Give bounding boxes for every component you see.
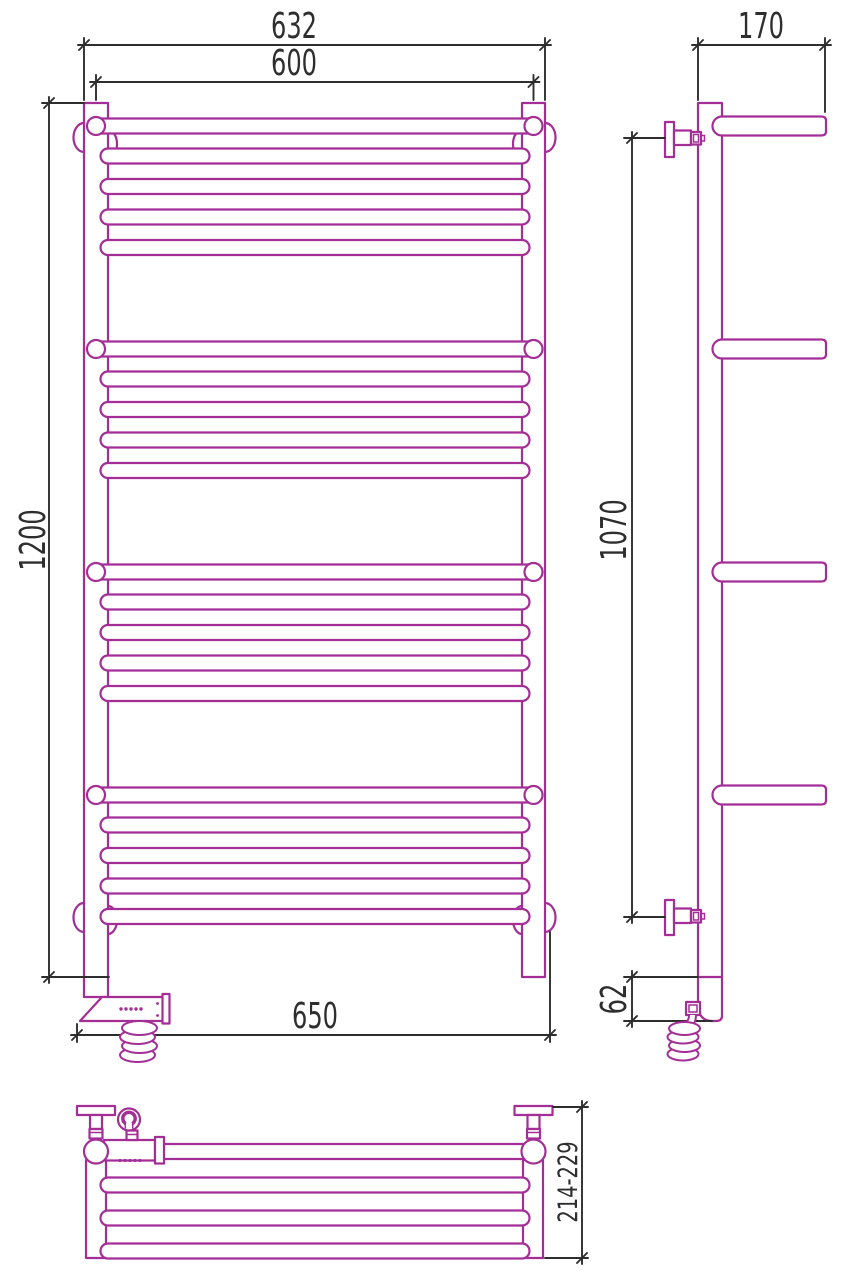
- plan-shelf-bar: [101, 1244, 530, 1259]
- shelf-arm: [713, 786, 827, 805]
- plan-view: [77, 1106, 553, 1259]
- rung: [101, 625, 530, 640]
- shelf-arm-end: [525, 786, 543, 804]
- rung: [101, 240, 530, 255]
- rung: [101, 686, 530, 701]
- collector-rung: [96, 788, 534, 803]
- bracket-plate: [77, 1106, 115, 1115]
- bracket-stem: [674, 131, 691, 146]
- side-view: [665, 103, 826, 1021]
- shelf-arm-end: [87, 563, 105, 581]
- rung: [101, 372, 530, 387]
- dim-214-229: 214-229: [545, 1101, 588, 1264]
- front-power-cord-coil: [120, 1021, 157, 1062]
- shelf-arm: [713, 340, 827, 359]
- bracket-foot: [90, 1129, 103, 1139]
- rung: [101, 656, 530, 671]
- plan-wall-bracket-right: [515, 1106, 553, 1139]
- rung: [101, 210, 530, 225]
- plan-shelf-bar: [101, 1178, 530, 1193]
- rung: [101, 595, 530, 610]
- rung: [101, 463, 530, 478]
- rung: [101, 149, 530, 164]
- shelf-arm-end: [87, 117, 105, 135]
- plan-control-box-endcap: [155, 1137, 164, 1164]
- dim-170: 170: [692, 6, 831, 112]
- collector-rung: [96, 565, 534, 580]
- bracket-stem: [674, 909, 691, 924]
- rung: [101, 848, 530, 863]
- right-post: [522, 103, 545, 977]
- plan-post-left: [84, 1140, 108, 1164]
- rung: [101, 909, 530, 924]
- plan-shelf-bar: [101, 1211, 530, 1226]
- rung: [101, 402, 530, 417]
- bracket-arc: [74, 123, 85, 152]
- plan-shelf-arm-right: [523, 1160, 543, 1258]
- plan-thermostat: [118, 1109, 140, 1141]
- bracket-stem: [528, 1115, 540, 1129]
- shelf-arm: [713, 563, 827, 582]
- bracket-foot: [527, 1129, 540, 1139]
- front-view: [74, 103, 556, 1024]
- dim-170-label: 170: [738, 6, 784, 47]
- plan-post-right: [522, 1140, 546, 1164]
- shelf-arm-end: [525, 117, 543, 135]
- rung: [101, 818, 530, 833]
- bracket-plate: [665, 122, 674, 157]
- dim-214-229-label: 214-229: [552, 1141, 584, 1222]
- shelf-arm-end: [525, 340, 543, 358]
- shelf-arm: [713, 117, 827, 136]
- control-box-front: [80, 994, 170, 1024]
- bracket-stem: [90, 1115, 102, 1129]
- bracket-arc: [545, 123, 556, 152]
- dim-1200-label: 1200: [13, 509, 54, 570]
- dim-1070: 1070: [594, 132, 665, 923]
- dim-62-label: 62: [594, 984, 635, 1015]
- control-box-endcap: [163, 994, 170, 1024]
- dim-600-label: 600: [271, 43, 317, 84]
- dim-650-label: 650: [292, 996, 338, 1037]
- cable-gland: [686, 1002, 700, 1015]
- rung: [101, 179, 530, 194]
- rung: [101, 433, 530, 448]
- collector-rung: [96, 119, 534, 134]
- collector-rung: [96, 342, 534, 357]
- shelf-arm-end: [87, 786, 105, 804]
- bracket-plate: [665, 900, 674, 935]
- plan-wall-bracket-left: [77, 1106, 115, 1139]
- bracket-plate: [515, 1106, 553, 1115]
- side-power-cord: [668, 1002, 701, 1061]
- technical-drawing-page: 632 600 1200 650 170 1070: [0, 0, 845, 1280]
- dim-1070-label: 1070: [594, 499, 635, 560]
- towel-rail-drawing: 632 600 1200 650 170 1070: [0, 0, 845, 1280]
- shelf-arm-end: [525, 563, 543, 581]
- side-shelf-arms: [713, 117, 827, 805]
- dim-600: 600: [90, 43, 540, 100]
- rungs: [101, 149, 530, 925]
- plan-control-box: [104, 1140, 155, 1161]
- shelf-arm-end: [87, 340, 105, 358]
- bracket-arc: [74, 903, 85, 932]
- plan-shelf-arm-left: [86, 1160, 106, 1258]
- bracket-arc: [545, 903, 556, 932]
- rung: [101, 879, 530, 894]
- dim-632-label: 632: [271, 6, 317, 47]
